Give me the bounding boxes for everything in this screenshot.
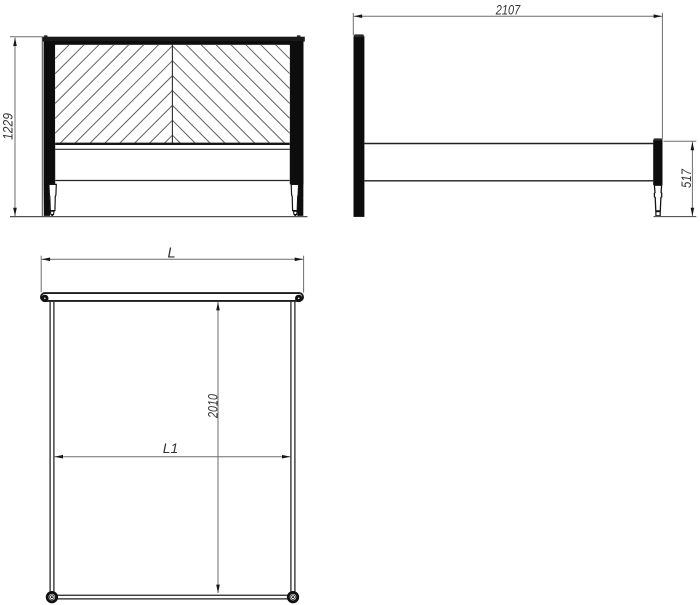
svg-text:1229: 1229 (1, 113, 16, 140)
svg-text:2107: 2107 (495, 2, 521, 18)
svg-text:517: 517 (678, 168, 694, 188)
svg-text:L1: L1 (163, 440, 179, 456)
svg-text:2010: 2010 (205, 394, 220, 419)
svg-text:L: L (167, 246, 175, 262)
